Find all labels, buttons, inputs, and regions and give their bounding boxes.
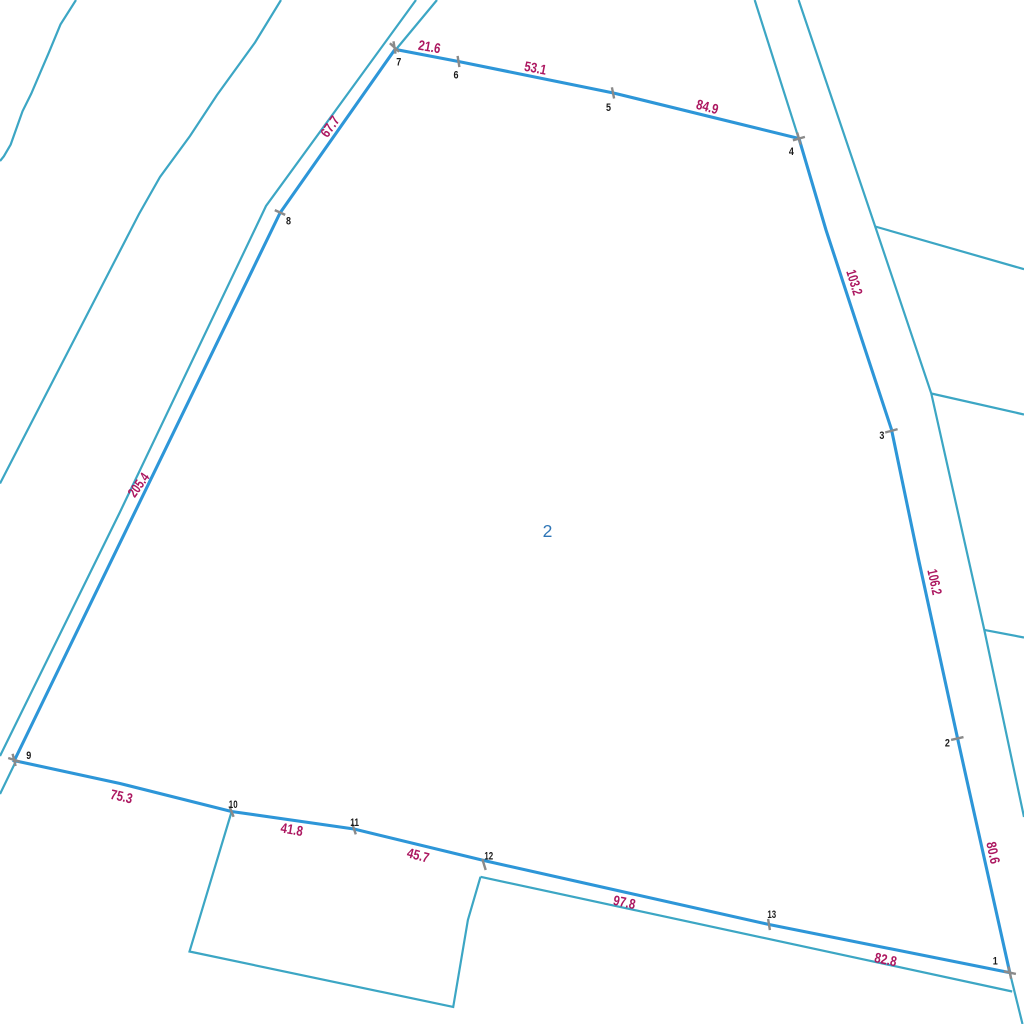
svg-text:10: 10 — [229, 799, 238, 811]
svg-text:12: 12 — [484, 850, 493, 862]
svg-text:7: 7 — [396, 57, 401, 69]
svg-text:5: 5 — [606, 102, 611, 114]
svg-text:1: 1 — [993, 955, 998, 967]
svg-text:4: 4 — [789, 146, 795, 158]
svg-text:6: 6 — [454, 69, 459, 81]
svg-text:13: 13 — [767, 909, 776, 921]
svg-text:9: 9 — [26, 750, 31, 762]
svg-text:2: 2 — [543, 521, 553, 541]
svg-text:2: 2 — [945, 737, 950, 749]
svg-text:11: 11 — [350, 817, 359, 829]
svg-text:3: 3 — [879, 430, 884, 442]
svg-text:8: 8 — [286, 216, 291, 228]
